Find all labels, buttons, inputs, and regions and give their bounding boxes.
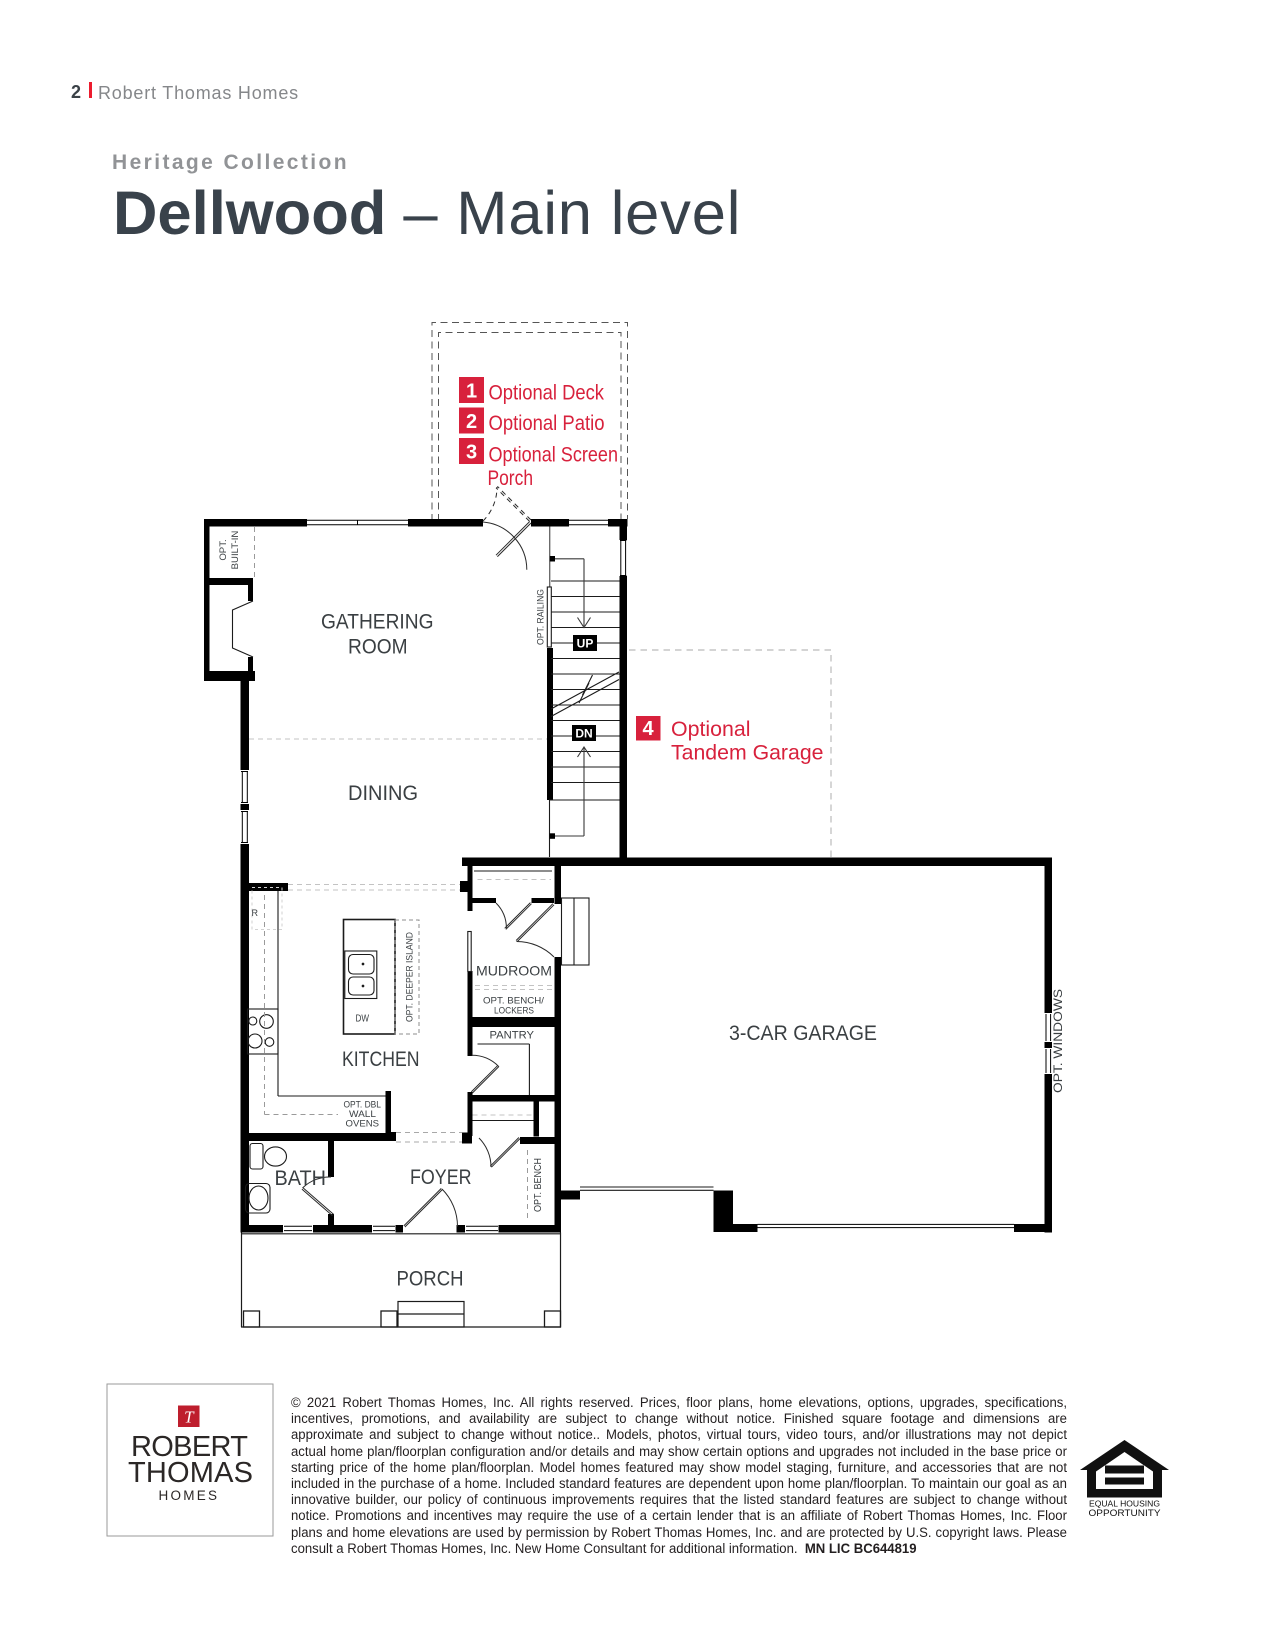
svg-text:PORCH: PORCH	[397, 1268, 464, 1291]
svg-text:Tandem Garage: Tandem Garage	[671, 742, 824, 765]
svg-text:MUDROOM: MUDROOM	[476, 963, 552, 979]
svg-text:THOMAS: THOMAS	[128, 1457, 253, 1489]
svg-text:HOMES: HOMES	[159, 1488, 218, 1503]
svg-text:OPPORTUNITY: OPPORTUNITY	[1089, 1508, 1161, 1518]
svg-text:Optional Deck: Optional Deck	[489, 382, 605, 405]
svg-text:4: 4	[642, 718, 654, 740]
svg-text:PANTRY: PANTRY	[490, 1030, 535, 1042]
svg-text:Optional Screen: Optional Screen	[489, 444, 619, 467]
svg-text:Optional Patio: Optional Patio	[489, 412, 605, 435]
svg-text:3-CAR GARAGE: 3-CAR GARAGE	[729, 1022, 877, 1045]
svg-text:R: R	[252, 908, 259, 918]
svg-text:DW: DW	[356, 1014, 370, 1025]
svg-text:BUILT-IN: BUILT-IN	[230, 531, 241, 570]
svg-text:UP: UP	[577, 637, 594, 651]
svg-text:OPT. WINDOWS: OPT. WINDOWS	[1051, 989, 1065, 1093]
svg-text:Optional: Optional	[671, 718, 751, 741]
svg-text:GATHERING: GATHERING	[321, 611, 434, 634]
svg-text:OPT.: OPT.	[218, 539, 229, 560]
svg-text:Porch: Porch	[488, 467, 534, 490]
svg-text:BATH: BATH	[275, 1167, 327, 1190]
svg-text:DN: DN	[575, 727, 592, 741]
svg-text:1: 1	[466, 381, 477, 403]
svg-text:3: 3	[466, 442, 477, 464]
svg-text:OPT. DEEPER ISLAND: OPT. DEEPER ISLAND	[405, 932, 416, 1022]
svg-text:KITCHEN: KITCHEN	[342, 1048, 420, 1071]
svg-text:LOCKERS: LOCKERS	[494, 1006, 534, 1017]
svg-text:FOYER: FOYER	[410, 1166, 472, 1189]
svg-text:OPT. BENCH: OPT. BENCH	[532, 1158, 544, 1212]
svg-text:DINING: DINING	[348, 782, 418, 805]
svg-text:ROOM: ROOM	[348, 636, 408, 659]
svg-text:OPT. RAILING: OPT. RAILING	[536, 589, 547, 645]
svg-text:EQUAL HOUSING: EQUAL HOUSING	[1089, 1499, 1160, 1509]
svg-text:2: 2	[466, 411, 477, 433]
svg-text:OVENS: OVENS	[346, 1119, 380, 1130]
svg-text:T: T	[184, 1408, 195, 1427]
